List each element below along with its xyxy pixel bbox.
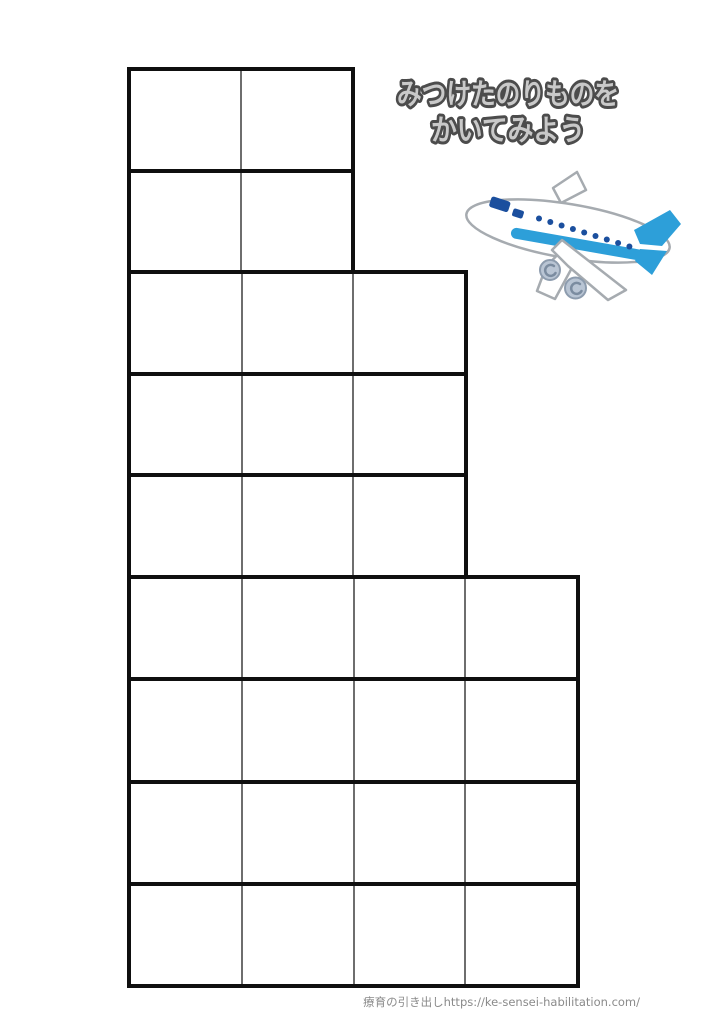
grid-cell [243, 681, 355, 779]
airplane-engine-front [540, 260, 560, 280]
grid-cell [355, 681, 467, 779]
grid-row [131, 71, 351, 173]
airplane-illustration [456, 166, 696, 316]
grid-cell [466, 784, 576, 882]
airplane-far-wing [553, 172, 586, 203]
grid-cell [243, 376, 355, 474]
airplane-engine-rear [565, 278, 586, 299]
grid-cell [354, 477, 464, 575]
grid-row [131, 579, 576, 681]
grid-row [131, 274, 464, 376]
grid-bottom-section [127, 575, 580, 988]
grid-cell [466, 579, 576, 677]
footer-credit: 療育の引き出しhttps://ke-sensei-habilitation.co… [363, 994, 640, 1010]
grid-cell [131, 784, 243, 882]
grid-cell [355, 784, 467, 882]
grid-top-section [127, 67, 355, 274]
grid-cell [243, 579, 355, 677]
grid-cell [466, 886, 576, 984]
grid-cell [243, 477, 355, 575]
grid-cell [354, 274, 464, 372]
grid-cell [131, 274, 243, 372]
airplane-tail-fin [634, 210, 681, 246]
grid-cell [242, 71, 351, 169]
grid-cell [243, 784, 355, 882]
grid-cell [242, 173, 351, 271]
grid-row [131, 784, 576, 886]
grid-cell [131, 173, 242, 271]
grid-cell [131, 886, 243, 984]
grid-cell [355, 886, 467, 984]
grid-cell [131, 579, 243, 677]
grid-row [131, 886, 576, 984]
grid-cell [243, 274, 355, 372]
grid-row [131, 681, 576, 783]
grid-cell [131, 681, 243, 779]
grid-cell [131, 477, 243, 575]
grid-cell [355, 579, 467, 677]
worksheet-page: みつけたのりものを かいてみよう [0, 0, 724, 1024]
grid-middle-section [127, 270, 468, 579]
worksheet-title: みつけたのりものを かいてみよう [383, 71, 633, 153]
grid-cell [131, 71, 242, 169]
grid-cell [466, 681, 576, 779]
grid-row [131, 173, 351, 271]
title-line-1: みつけたのりものを [397, 77, 619, 111]
grid-cell [131, 376, 243, 474]
grid-row [131, 376, 464, 478]
grid-cell [354, 376, 464, 474]
grid-row [131, 477, 464, 575]
title-line-2: かいてみよう [431, 113, 585, 147]
grid-cell [243, 886, 355, 984]
